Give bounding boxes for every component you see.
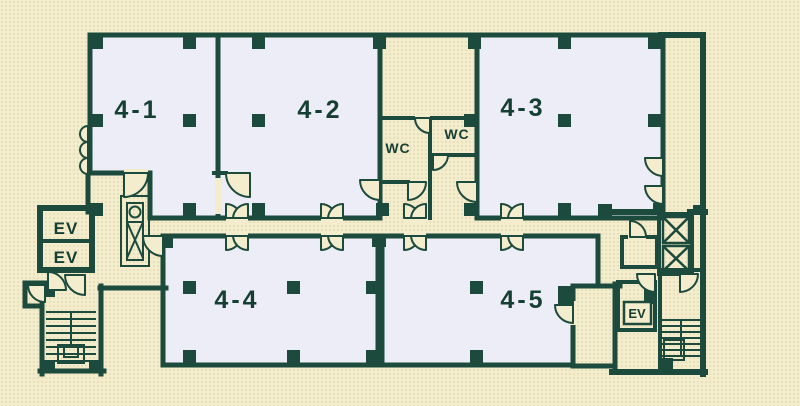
room-label-4-2: 4-2 (297, 96, 342, 124)
shaft-x-icon (663, 246, 689, 271)
elevator-right-label: EV (628, 306, 646, 321)
wc-right-label: WC (444, 126, 469, 142)
room-label-4-1: 4-1 (114, 96, 159, 124)
room-label-4-4: 4-4 (214, 286, 259, 314)
room-4-4 (163, 236, 378, 365)
room-label-4-3: 4-3 (500, 94, 545, 122)
stairs-right (662, 320, 700, 360)
elevator-left-bottom-label: EV (54, 248, 79, 267)
shaft-circle-icon (130, 207, 141, 218)
stairs-left (46, 312, 96, 363)
room-4-1 (90, 35, 218, 218)
shaft-x-icon (663, 217, 689, 243)
floor-plan-drawing: 4-1 4-2 4-3 4-4 4-5 WC WC EV EV EV (0, 0, 800, 406)
room-label-4-5: 4-5 (500, 286, 545, 314)
wc-left-label: WC (385, 140, 410, 156)
elevator-shaft-left (121, 196, 149, 266)
elevator-shafts-right (663, 217, 689, 271)
elevator-left-top-label: EV (54, 219, 79, 238)
floor-plan: 4-1 4-2 4-3 4-4 4-5 WC WC EV EV EV (0, 0, 800, 406)
